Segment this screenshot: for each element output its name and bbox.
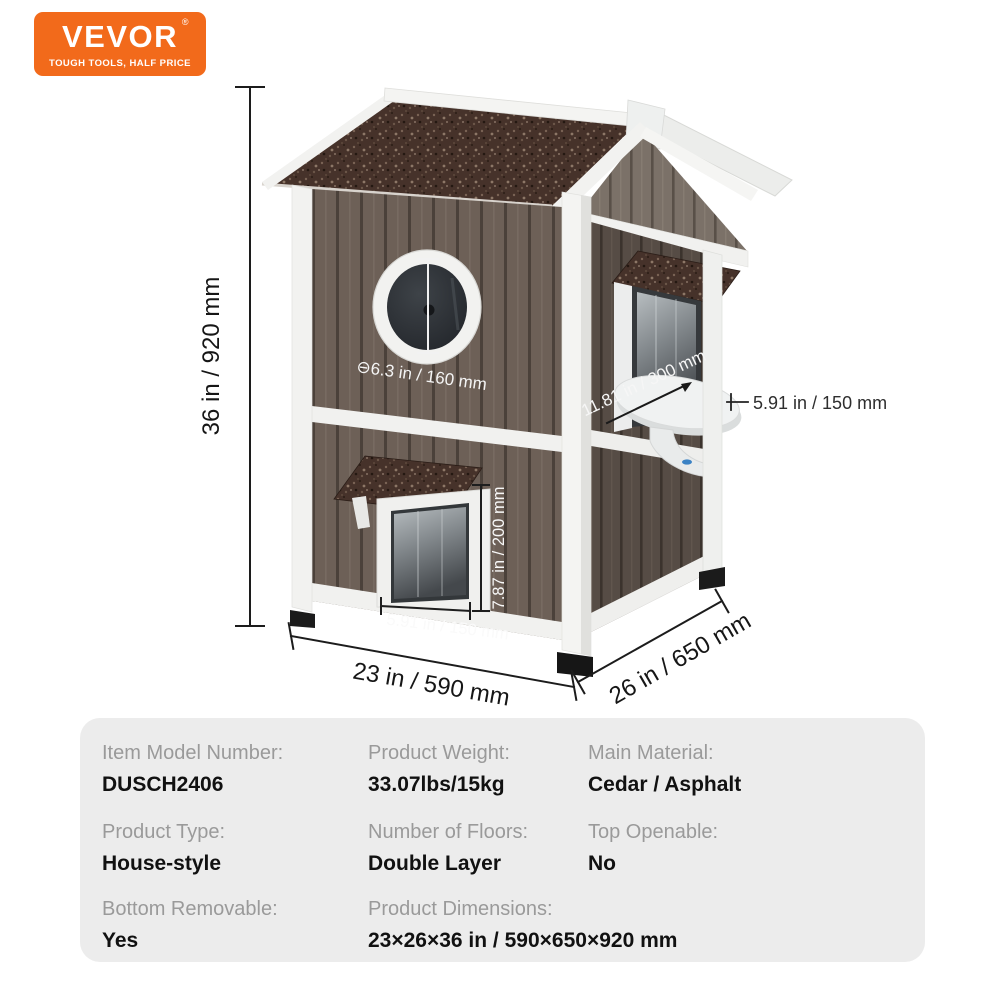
spec-label: Top Openable: [588,820,718,844]
spec-value: 33.07lbs/15kg [368,772,510,797]
dim-base-width-label: 23 in / 590 mm [351,658,512,712]
front-right-post-shade [581,195,591,656]
spec-main-material: Main Material: Cedar / Asphalt [588,741,741,797]
front-left-foot [290,610,315,628]
dim-base-width: 23 in / 590 mm [289,623,577,711]
dim-base-depth-label: 26 in / 650 mm [605,607,756,710]
spec-top-openable: Top Openable: No [588,820,718,876]
spec-label: Product Weight: [368,741,510,765]
spec-value: Double Layer [368,851,528,876]
dim-perch-label: 5.91 in / 150 mm [753,393,887,413]
front-right-foot [557,652,593,677]
spec-product-weight: Product Weight: 33.07lbs/15kg [368,741,510,797]
spec-value: House-style [102,851,225,876]
cat-house [262,88,792,677]
vevor-mark-blue [682,459,692,464]
spec-value: 23×26×36 in / 590×650×920 mm [368,928,677,953]
dim-perch: 5.91 in / 150 mm [727,393,887,413]
dim-height: 36 in / 920 mm [198,87,264,626]
dim-door-height-label: 7.87 in / 200 mm [490,487,508,610]
spec-label: Main Material: [588,741,741,765]
door-flap [394,507,466,599]
cat-door [377,489,490,612]
spec-product-type: Product Type: House-style [102,820,225,876]
spec-value: No [588,851,718,876]
dim-height-label: 36 in / 920 mm [198,277,225,436]
spec-label: Item Model Number: [102,741,283,765]
spec-bottom-removable: Bottom Removable: Yes [102,897,278,953]
spec-label: Bottom Removable: [102,897,278,921]
spec-label: Number of Floors: [368,820,528,844]
spec-label: Product Dimensions: [368,897,677,921]
spec-number-of-floors: Number of Floors: Double Layer [368,820,528,876]
spec-item-model: Item Model Number: DUSCH2406 [102,741,283,797]
front-left-post [292,185,312,612]
back-right-post [703,250,722,574]
spec-product-dimensions: Product Dimensions: 23×26×36 in / 590×65… [368,897,677,953]
spec-label: Product Type: [102,820,225,844]
spec-value: DUSCH2406 [102,772,283,797]
spec-table: Item Model Number: DUSCH2406 Product Wei… [80,718,925,962]
product-photo-cat-house: 36 in / 920 mm ⊖6.3 in / 160 mm 11.81 in… [0,0,1000,718]
product-page: VEVOR® TOUGH TOOLS, HALF PRICE [0,0,1000,1000]
spec-value: Yes [102,928,278,953]
spec-value: Cedar / Asphalt [588,772,741,797]
